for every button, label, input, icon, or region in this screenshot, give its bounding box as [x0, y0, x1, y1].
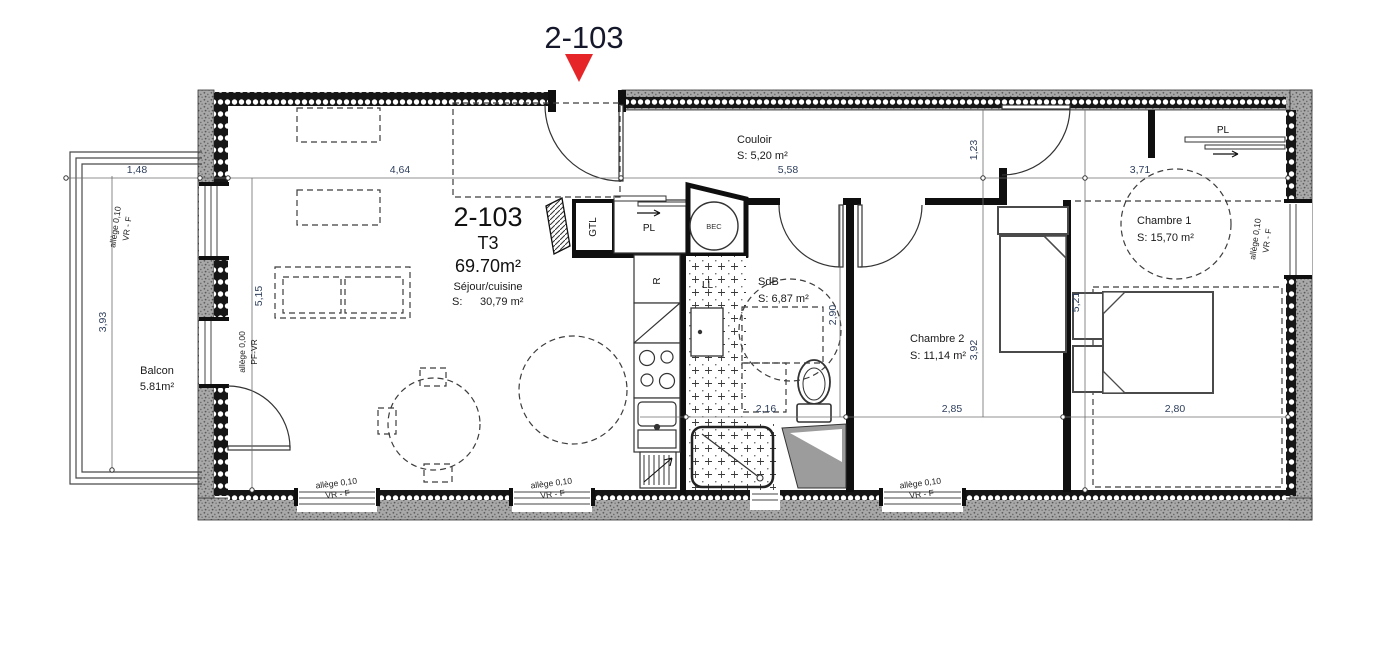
dining-table: [388, 378, 480, 470]
couloir-name: Couloir: [737, 134, 772, 146]
dim-balcony-height: 3,93: [97, 312, 109, 333]
balcony-railing: [70, 152, 202, 484]
chambre2-name: Chambre 2: [910, 333, 964, 345]
entry-closets: [546, 185, 746, 255]
sejour-type: T3: [477, 233, 498, 253]
right-window-type: VR - F: [1260, 228, 1273, 254]
balcon-area: 5.81m²: [140, 381, 175, 393]
dim-balcony-width: 1,48: [127, 164, 148, 176]
bec-label: BEC: [706, 222, 722, 231]
chambre2-area: S: 11,14 m²: [910, 350, 966, 362]
entrance-door-arc: [545, 105, 621, 181]
nightstand: [1073, 346, 1103, 392]
sejour-area-prefix: S:: [452, 296, 462, 308]
dim-chambre1-width: 2,80: [1165, 403, 1186, 415]
chambre1-area: S: 15,70 m²: [1137, 232, 1194, 244]
balcony-door-allege: allège 0,00: [237, 331, 247, 373]
dim-entry-height: 1,23: [968, 140, 980, 161]
floor-plan-page: 2-103: [0, 0, 1397, 671]
turning-circle: [519, 336, 627, 444]
arrow-right-icon: [1213, 151, 1238, 157]
dim-sdb-width: 2,16: [756, 403, 777, 415]
washbasin: [691, 308, 723, 356]
sliding-door-icon: [1185, 137, 1285, 142]
gtl-label: GTL: [588, 217, 599, 237]
bathroom-fixtures: [686, 256, 846, 490]
pl-chambre1-label: PL: [1217, 125, 1230, 136]
living-furniture: [275, 103, 627, 482]
gtl-door-leaf: [546, 198, 570, 254]
washer-label: LL: [702, 280, 714, 291]
dim-chambre2-height: 3,92: [968, 340, 980, 361]
chair: [424, 464, 452, 482]
unit-title: 2-103: [544, 20, 623, 55]
bed-single: [1000, 236, 1066, 352]
entry-zone: [453, 103, 620, 197]
sdb-door-arc: [779, 205, 841, 267]
kitchen-fixtures: [634, 255, 680, 488]
sliding-door-icon: [614, 196, 666, 201]
chambre2-furniture: [998, 207, 1068, 352]
fridge-label: R: [652, 277, 663, 284]
sdb-area: S: 6,87 m²: [758, 293, 809, 305]
couloir-area: S: 5,20 m²: [737, 150, 788, 162]
left-window-type: VR - F: [120, 216, 133, 242]
cooktop: [634, 343, 680, 398]
sejour-total-area: 69.70m²: [455, 256, 521, 276]
dim-sejour-height: 5,15: [253, 286, 265, 307]
sejour-unit: 2-103: [453, 202, 522, 232]
right-window-allege: allège 0,10: [1247, 217, 1263, 260]
sofa: [275, 267, 410, 318]
bed-double: [1103, 292, 1213, 393]
chair: [378, 408, 396, 434]
dim-sdb-height: 2,90: [827, 305, 839, 326]
balcony-door-leaf: [228, 446, 290, 450]
sejour-area: 30,79 m²: [480, 296, 524, 308]
floor-plan-drawing: 2-103: [0, 0, 1397, 671]
nightstand: [998, 207, 1068, 234]
chair: [420, 368, 446, 386]
chambre2-door-leaf: [858, 205, 862, 267]
dim-chambre1-top: 3,71: [1130, 164, 1151, 176]
pl-entry-label: PL: [643, 223, 656, 234]
sejour-name: Séjour/cuisine: [453, 281, 522, 293]
unit-pointer-icon: [565, 54, 593, 82]
balcony-door-type: PF-VR: [249, 339, 259, 365]
chambre2-door-arc: [860, 205, 922, 267]
fixture-reserve: [742, 307, 823, 363]
sideboard: [297, 190, 380, 225]
shower-drain-icon: [757, 475, 763, 481]
dim-sejour-width: 4,64: [390, 164, 411, 176]
dim-chambre1-height: 5,21: [1070, 292, 1082, 313]
dim-couloir-width: 5,58: [778, 164, 799, 176]
chambre1-name: Chambre 1: [1137, 215, 1191, 227]
chambre1-closet: [1185, 137, 1285, 157]
dim-chambre2-width: 2,85: [942, 403, 963, 415]
left-window-allege: allège 0,10: [107, 205, 123, 248]
balcony-door-arc: [228, 386, 290, 448]
sdb-name: SdB: [758, 276, 779, 288]
chambre1-door-leaf: [1002, 105, 1070, 109]
chambre1-door-arc: [1002, 107, 1070, 175]
sideboard: [297, 108, 380, 142]
balcon-name: Balcon: [140, 365, 174, 377]
